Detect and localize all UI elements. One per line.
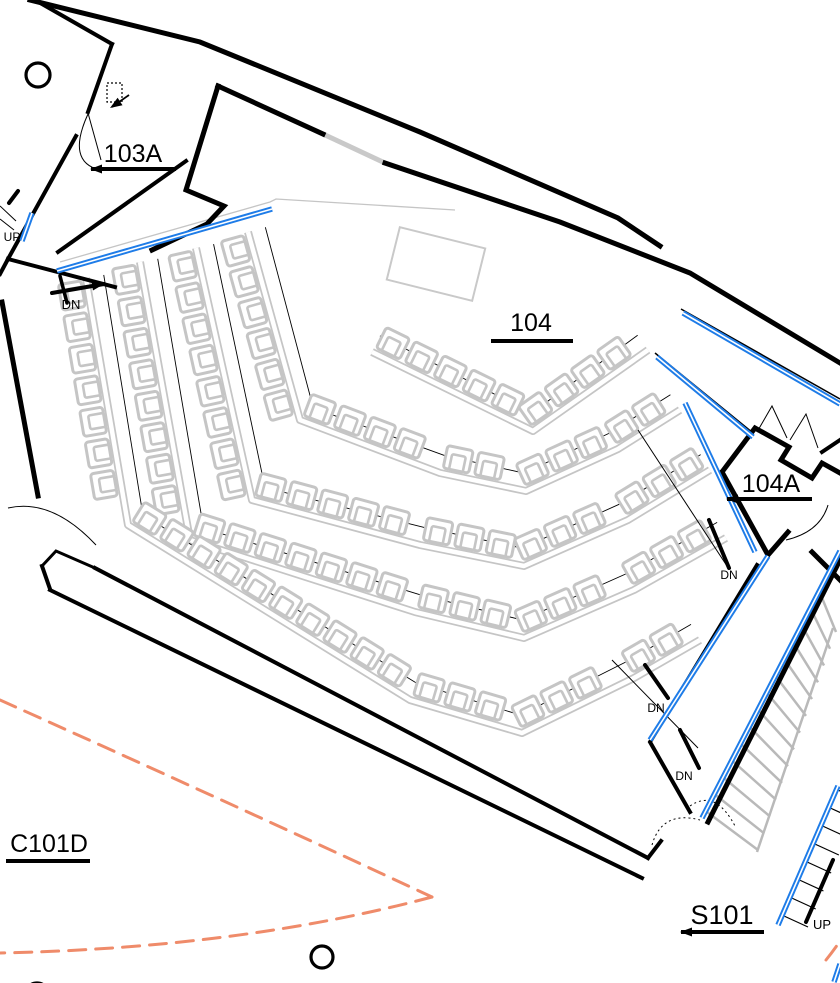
thin-line bbox=[638, 430, 727, 566]
chair-outer bbox=[182, 314, 210, 344]
chair-outer bbox=[135, 391, 162, 421]
door-swing-arc bbox=[786, 505, 828, 540]
column-circle bbox=[311, 946, 333, 968]
chair bbox=[129, 359, 157, 389]
room-label-C101D: C101D bbox=[6, 830, 90, 863]
wall-segment bbox=[708, 560, 840, 822]
chair-outer bbox=[264, 390, 293, 421]
room-label-103A: 103A bbox=[90, 140, 176, 174]
gray-line bbox=[323, 134, 385, 163]
room-label-underline bbox=[727, 497, 812, 501]
column-circle bbox=[26, 63, 50, 87]
chair-outer bbox=[169, 251, 197, 281]
wall-segment bbox=[30, 0, 660, 246]
seating-rows bbox=[58, 227, 726, 733]
chair-outer bbox=[413, 673, 444, 702]
chair-outer bbox=[230, 266, 259, 297]
lectern-area bbox=[387, 227, 485, 301]
chair-outer bbox=[286, 481, 317, 510]
direction-tick bbox=[9, 191, 18, 203]
room-label-text: S101 bbox=[690, 900, 753, 930]
wall-segment bbox=[42, 566, 50, 589]
chair bbox=[90, 470, 118, 500]
wall-segment bbox=[2, 302, 38, 496]
thin-line bbox=[790, 414, 818, 448]
chair-outer bbox=[379, 506, 410, 535]
chair-outer bbox=[129, 359, 156, 389]
stair-dir-label-up-stair: UP bbox=[813, 917, 831, 932]
egress-dashed-arc bbox=[0, 700, 432, 897]
chair bbox=[418, 585, 449, 614]
chair bbox=[69, 344, 97, 374]
chair bbox=[210, 439, 239, 469]
egress-dashed-arc bbox=[0, 897, 432, 953]
chair-outer bbox=[141, 422, 168, 452]
chair-outer bbox=[203, 407, 231, 437]
chair-outer bbox=[69, 344, 96, 374]
chair bbox=[146, 454, 174, 484]
chair-outer bbox=[217, 470, 245, 500]
chair-outer bbox=[255, 473, 286, 502]
egress-dashed-arc bbox=[826, 941, 840, 960]
direction-tick bbox=[645, 665, 668, 698]
chair-outer bbox=[449, 592, 480, 620]
chair-outer bbox=[74, 376, 101, 406]
chair bbox=[196, 376, 225, 406]
thin-line bbox=[0, 206, 16, 221]
egress-edge-core bbox=[702, 551, 840, 818]
chair-outer bbox=[210, 439, 238, 469]
stair-tread bbox=[742, 745, 782, 783]
chair bbox=[454, 524, 484, 552]
chair bbox=[423, 517, 453, 545]
annotation-icons bbox=[107, 83, 129, 107]
room-label-104A: 104A bbox=[726, 470, 812, 504]
stair-tread bbox=[823, 826, 840, 837]
stair-tread bbox=[733, 761, 776, 799]
chair-outer bbox=[80, 407, 107, 437]
stair-dir-label-dn-mid: DN bbox=[720, 568, 737, 582]
stair-tread bbox=[750, 728, 788, 766]
wall-segment bbox=[648, 841, 661, 858]
chair bbox=[486, 530, 516, 558]
stair-dir-label-up-left: UP bbox=[4, 230, 21, 244]
chair-outer bbox=[317, 490, 348, 519]
room-label-arrow bbox=[680, 928, 692, 937]
stair-dir-label-dn-stair-2: DN bbox=[675, 769, 692, 783]
chair-outer bbox=[146, 454, 173, 484]
chair bbox=[176, 282, 205, 312]
chair bbox=[169, 251, 198, 281]
thin-line bbox=[0, 219, 14, 230]
chair bbox=[449, 592, 480, 621]
room-label-underline bbox=[6, 859, 90, 863]
chair-outer bbox=[221, 235, 250, 266]
wall-segment bbox=[218, 86, 323, 134]
stair-tread bbox=[830, 808, 840, 819]
chair-outer bbox=[348, 498, 379, 527]
stair-tread bbox=[724, 778, 770, 816]
chair-outer bbox=[444, 682, 475, 711]
chair-outer bbox=[443, 445, 473, 473]
chair bbox=[118, 296, 146, 326]
wall-segment bbox=[42, 551, 95, 568]
chair-outer bbox=[124, 328, 151, 358]
chair bbox=[141, 422, 169, 452]
chair-outer bbox=[247, 328, 276, 359]
room-label-underline bbox=[91, 167, 176, 171]
stair-dir-label-dn-stair-1: DN bbox=[647, 701, 664, 715]
chair-outer bbox=[176, 282, 204, 312]
stair-tread bbox=[815, 844, 839, 855]
chair bbox=[124, 328, 152, 358]
door-swing-arc bbox=[8, 506, 96, 545]
chair-outer bbox=[480, 600, 511, 628]
room-label-arrow bbox=[90, 165, 102, 174]
room-label-text: 103A bbox=[104, 140, 163, 168]
egress-edge-core bbox=[778, 786, 838, 925]
chair bbox=[474, 452, 504, 480]
stair-tread bbox=[707, 812, 758, 850]
chair bbox=[74, 375, 102, 405]
chair-outer bbox=[196, 376, 224, 406]
egress-edge-core bbox=[657, 357, 753, 437]
wall-segment bbox=[0, 259, 8, 274]
chair bbox=[443, 445, 473, 473]
room-label-text: 104 bbox=[510, 309, 552, 337]
chair bbox=[189, 345, 218, 375]
door-tag-icon bbox=[107, 83, 122, 102]
chair bbox=[286, 481, 317, 510]
chair bbox=[85, 439, 113, 469]
direction-tick bbox=[806, 860, 833, 922]
chair bbox=[217, 470, 246, 500]
room-label-104: 104 bbox=[491, 309, 573, 343]
chair bbox=[135, 391, 163, 421]
door-swing-arc bbox=[79, 114, 100, 170]
chair-outer bbox=[475, 691, 506, 720]
room-label-text: 104A bbox=[742, 470, 801, 498]
chair-outer bbox=[474, 452, 504, 480]
floor-plan-page: 103A104104AC101DS101UPDNDNDNDNUP bbox=[0, 0, 840, 983]
thin-line bbox=[88, 113, 101, 160]
chair bbox=[203, 407, 232, 437]
chair-outer bbox=[189, 345, 217, 375]
chair bbox=[112, 265, 140, 295]
lectern-rect bbox=[387, 227, 485, 301]
chair-outer bbox=[112, 265, 139, 295]
chair bbox=[182, 314, 211, 344]
stair-dir-label-dn-seating: DN bbox=[62, 297, 81, 312]
chair-outer bbox=[118, 296, 145, 326]
stair-treads bbox=[707, 593, 840, 927]
chair-outer bbox=[85, 439, 112, 469]
floor-plan-canvas: 103A104104AC101DS101UPDNDNDNDNUP bbox=[0, 0, 840, 983]
chair-outer bbox=[454, 524, 484, 552]
room-label-S101: S101 bbox=[680, 900, 764, 937]
room-label-text: C101D bbox=[10, 830, 88, 858]
stair-tread bbox=[716, 795, 764, 833]
chair-outer bbox=[90, 470, 117, 500]
direction-tick bbox=[680, 730, 699, 768]
chair-outer bbox=[64, 312, 91, 342]
wall-segment bbox=[35, 0, 112, 44]
chair bbox=[64, 312, 92, 342]
wall-segment bbox=[88, 44, 112, 112]
chair bbox=[480, 600, 511, 629]
egress-edge-core bbox=[683, 313, 840, 404]
chair-outer bbox=[418, 585, 449, 613]
chair-outer bbox=[486, 530, 516, 558]
chair-outer bbox=[238, 297, 267, 328]
chair-outer bbox=[255, 359, 284, 390]
chair-outer bbox=[423, 517, 453, 545]
chair bbox=[80, 407, 108, 437]
room-label-underline bbox=[491, 339, 573, 343]
room-label-underline bbox=[681, 930, 764, 934]
wall-segment bbox=[822, 440, 840, 452]
